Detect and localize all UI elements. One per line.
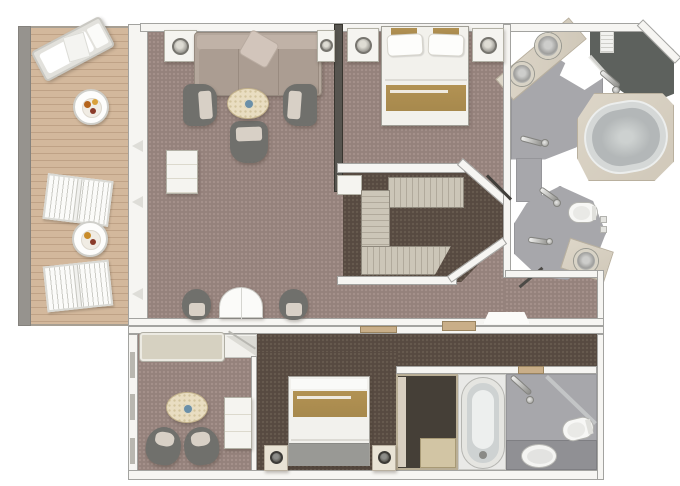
- tub-chair-cushion: [190, 431, 211, 448]
- second-bed: [288, 376, 370, 466]
- sofa-second: [140, 333, 224, 361]
- bed-runner: [293, 391, 367, 417]
- tub-chair-left: [143, 424, 184, 468]
- tub-chair-right: [182, 425, 222, 468]
- tub-chair-cushion: [154, 431, 175, 448]
- tall-cabinet: [224, 397, 252, 449]
- second-stateroom-furniture: [0, 0, 680, 486]
- oval-table: [166, 392, 208, 423]
- table-centerpiece: [184, 405, 192, 413]
- headboard: [289, 443, 369, 466]
- sheet-fold: [291, 439, 369, 441]
- floorplan-canvas: [0, 0, 680, 486]
- runner-stripe: [297, 396, 351, 399]
- bedside-lamp: [270, 451, 283, 464]
- bed-foot-band: [291, 379, 367, 389]
- bedside-lamp: [378, 451, 391, 464]
